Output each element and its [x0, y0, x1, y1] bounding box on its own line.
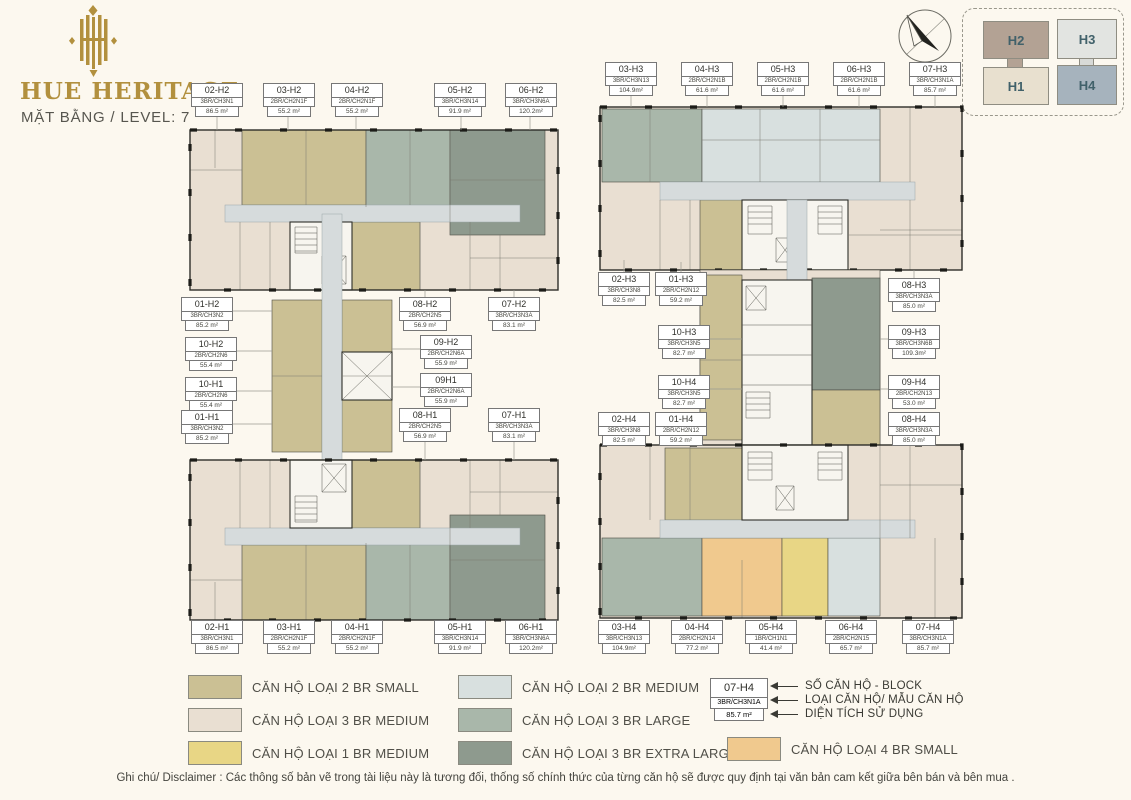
legend-swatch	[458, 708, 512, 732]
legend-swatch	[188, 675, 242, 699]
legend-item: CĂN HỘ LOẠI 3 BR EXTRA LARGE	[458, 742, 738, 764]
legend-column-3: CĂN HỘ LOẠI 4 BR SMALL	[727, 738, 958, 771]
block-h1-h2	[190, 130, 558, 620]
explanation-row: DIỆN TÍCH SỬ DỤNG	[772, 708, 923, 720]
block-h3-h4	[600, 107, 962, 618]
explanation-row: LOẠI CĂN HỘ/ MẪU CĂN HỘ	[772, 694, 964, 706]
legend-label: CĂN HỘ LOẠI 2 BR MEDIUM	[522, 680, 699, 695]
label-explanation: 07-H4 3BR/CH3N1A 85.7 m² SỐ CĂN HỘ - BLO…	[710, 678, 970, 726]
legend-column-2: CĂN HỘ LOẠI 2 BR MEDIUM CĂN HỘ LOẠI 3 BR…	[458, 676, 738, 775]
legend-label: CĂN HỘ LOẠI 2 BR SMALL	[252, 680, 419, 695]
legend-column-1: CĂN HỘ LOẠI 2 BR SMALL CĂN HỘ LOẠI 3 BR …	[188, 676, 429, 775]
example-unit-id: 07-H4	[710, 678, 768, 698]
explanation-text: LOẠI CĂN HỘ/ MẪU CĂN HỘ	[805, 694, 964, 706]
legend-label: CĂN HỘ LOẠI 4 BR SMALL	[791, 742, 958, 757]
arrow-left-icon	[772, 700, 798, 701]
explanation-row: SỐ CĂN HỘ - BLOCK	[772, 680, 922, 692]
legend-swatch	[727, 737, 781, 761]
explanation-text: DIỆN TÍCH SỬ DỤNG	[805, 708, 923, 720]
legend-label: CĂN HỘ LOẠI 3 BR LARGE	[522, 713, 690, 728]
legend-item: CĂN HỘ LOẠI 2 BR MEDIUM	[458, 676, 738, 698]
legend-swatch	[458, 741, 512, 765]
disclaimer-text: Ghi chú/ Disclaimer : Các thông số bản v…	[0, 772, 1131, 784]
legend-swatch	[458, 675, 512, 699]
legend-label: CĂN HỘ LOẠI 3 BR EXTRA LARGE	[522, 746, 738, 761]
explanation-text: SỐ CĂN HỘ - BLOCK	[805, 680, 922, 692]
arrow-left-icon	[772, 714, 798, 715]
legend-item: CĂN HỘ LOẠI 1 BR MEDIUM	[188, 742, 429, 764]
legend-item: CĂN HỘ LOẠI 4 BR SMALL	[727, 738, 958, 760]
example-unit-label: 07-H4 3BR/CH3N1A 85.7 m²	[710, 678, 768, 721]
floor-plan-page: HUE HERITAGE MẶT BẰNG / LEVEL: 7 H2 H3 H…	[0, 0, 1131, 800]
example-unit-area: 85.7 m²	[714, 709, 764, 721]
legend-item: CĂN HỘ LOẠI 3 BR LARGE	[458, 709, 738, 731]
arrow-left-icon	[772, 686, 798, 687]
legend-swatch	[188, 741, 242, 765]
legend-item: CĂN HỘ LOẠI 2 BR SMALL	[188, 676, 429, 698]
legend-item: CĂN HỘ LOẠI 3 BR MEDIUM	[188, 709, 429, 731]
legend-label: CĂN HỘ LOẠI 3 BR MEDIUM	[252, 713, 429, 728]
legend-swatch	[188, 708, 242, 732]
example-unit-code: 3BR/CH3N1A	[710, 698, 768, 709]
legend-label: CĂN HỘ LOẠI 1 BR MEDIUM	[252, 746, 429, 761]
